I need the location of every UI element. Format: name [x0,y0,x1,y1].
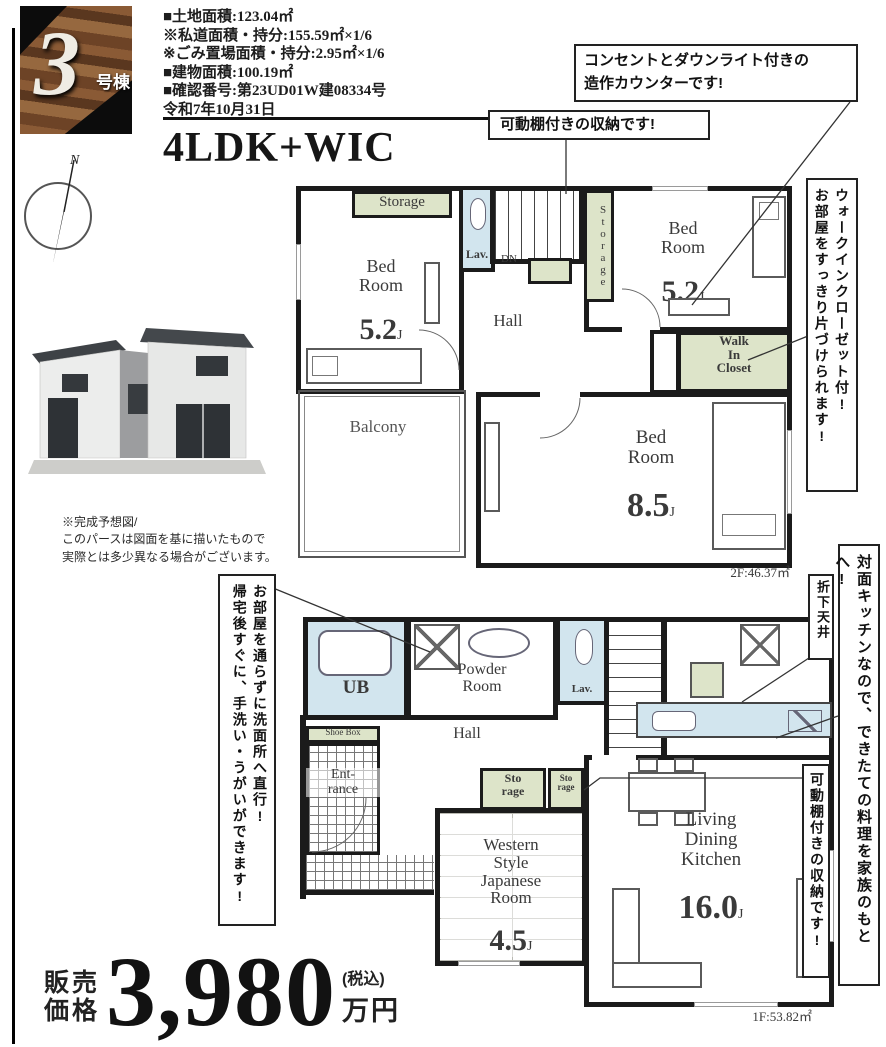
callout-open-kitchen: 対面キッチンなので、できたての料理を家族のもとへ! [838,544,880,986]
leader-lines [0,0,886,1044]
callout-washroom: お部屋を通らずに洗面所へ直行! 帰宅後すぐに、手洗い・うがいができます! [218,574,276,926]
callout-counter: コンセントとダウンライト付きの 造作カウンターです! [574,44,858,102]
callout-movable-shelf-1f: 可動棚付きの収納です! [802,764,830,978]
callout-walk-in-closet: ウォークインクローゼット付! お部屋をすっきり片づけられます! [806,178,858,492]
callout-movable-shelf-2f: 可動棚付きの収納です! [488,110,710,140]
flyer-page: { "badge": {"number": "3", "suffix": "号棟… [0,0,886,1044]
